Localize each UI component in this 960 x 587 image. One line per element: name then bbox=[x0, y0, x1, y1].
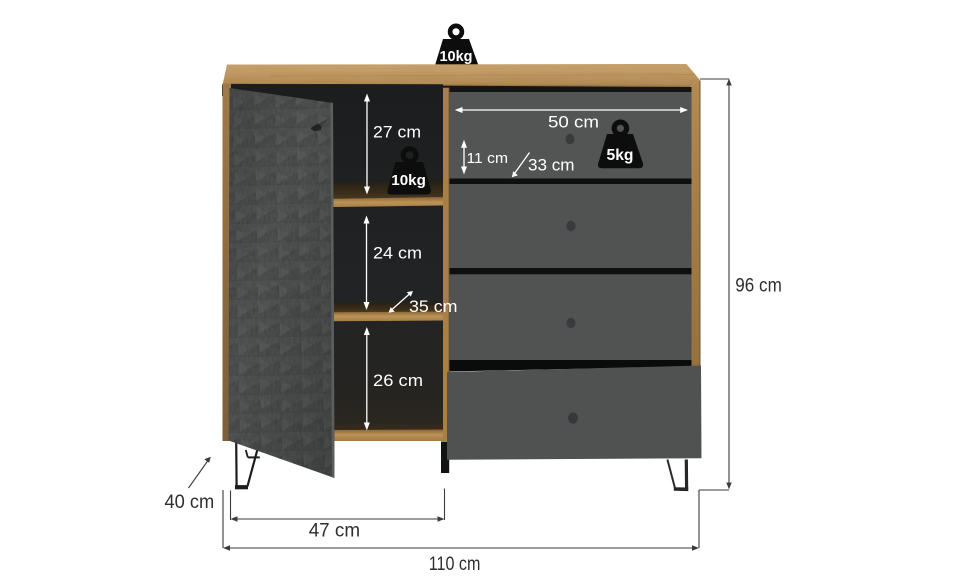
svg-text:40 cm: 40 cm bbox=[165, 492, 215, 513]
svg-text:24 cm: 24 cm bbox=[373, 244, 422, 263]
svg-text:26 cm: 26 cm bbox=[373, 371, 423, 390]
svg-text:5kg: 5kg bbox=[607, 147, 634, 164]
svg-text:96 cm: 96 cm bbox=[735, 276, 782, 297]
svg-text:50 cm: 50 cm bbox=[548, 113, 599, 132]
svg-text:10kg: 10kg bbox=[440, 49, 473, 65]
svg-text:110 cm: 110 cm bbox=[429, 553, 481, 575]
svg-text:47 cm: 47 cm bbox=[309, 521, 360, 542]
svg-text:10kg: 10kg bbox=[391, 172, 426, 189]
svg-text:35 cm: 35 cm bbox=[409, 297, 458, 316]
svg-text:33 cm: 33 cm bbox=[528, 157, 575, 175]
svg-text:27 cm: 27 cm bbox=[373, 123, 421, 142]
svg-text:11 cm: 11 cm bbox=[467, 150, 509, 167]
